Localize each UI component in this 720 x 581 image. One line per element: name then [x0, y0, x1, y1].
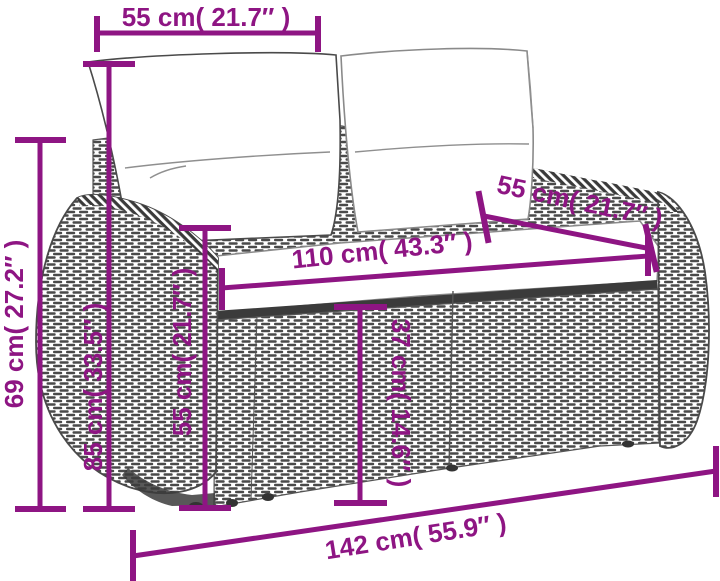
- sofa-foot: [622, 441, 634, 448]
- right-back-pillow: [341, 49, 533, 232]
- sofa-foot: [446, 465, 458, 472]
- right-armrest: [658, 192, 709, 448]
- dim-armrest-height-label: 55 cm( 21.7″ ): [167, 268, 197, 437]
- sofa-diagram-svg: 55 cm( 21.7″ ) 69 cm( 27.2″ ) 85 cm( 33.…: [0, 0, 720, 581]
- dim-top-backrest-width: 55 cm( 21.7″ ): [97, 2, 318, 49]
- sofa-foot: [262, 493, 274, 501]
- dim-left-total-height-label: 69 cm( 27.2″ ): [0, 240, 29, 409]
- sofa-illustration: [36, 49, 709, 510]
- dim-seat-height-label: 37 cm( 14.6″ ): [386, 319, 416, 488]
- product-dimension-image: 55 cm( 21.7″ ) 69 cm( 27.2″ ) 85 cm( 33.…: [0, 0, 720, 581]
- dim-back-height-label: 85 cm( 33.5″ ): [78, 303, 108, 472]
- front-panel: [214, 289, 659, 507]
- dim-top-backrest-width-label: 55 cm( 21.7″ ): [122, 2, 291, 32]
